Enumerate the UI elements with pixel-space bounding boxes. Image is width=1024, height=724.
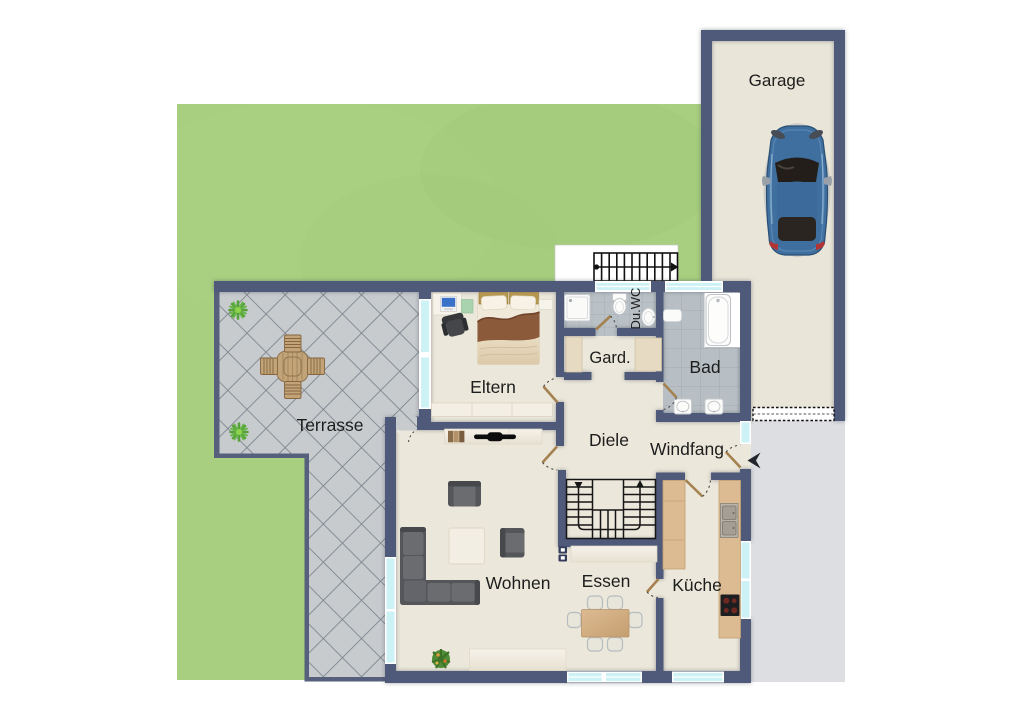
svg-text:Gard.: Gard.	[589, 349, 630, 367]
svg-text:Eltern: Eltern	[470, 377, 516, 397]
svg-text:Diele: Diele	[589, 430, 629, 450]
svg-text:Bad: Bad	[689, 357, 720, 377]
svg-text:Terrasse: Terrasse	[296, 415, 363, 435]
svg-text:Wohnen: Wohnen	[486, 573, 551, 593]
svg-text:Küche: Küche	[672, 575, 722, 595]
svg-text:Du.WC: Du.WC	[628, 288, 643, 330]
svg-text:Windfang: Windfang	[650, 439, 724, 459]
svg-text:Garage: Garage	[749, 71, 806, 90]
svg-text:Essen: Essen	[582, 571, 631, 591]
